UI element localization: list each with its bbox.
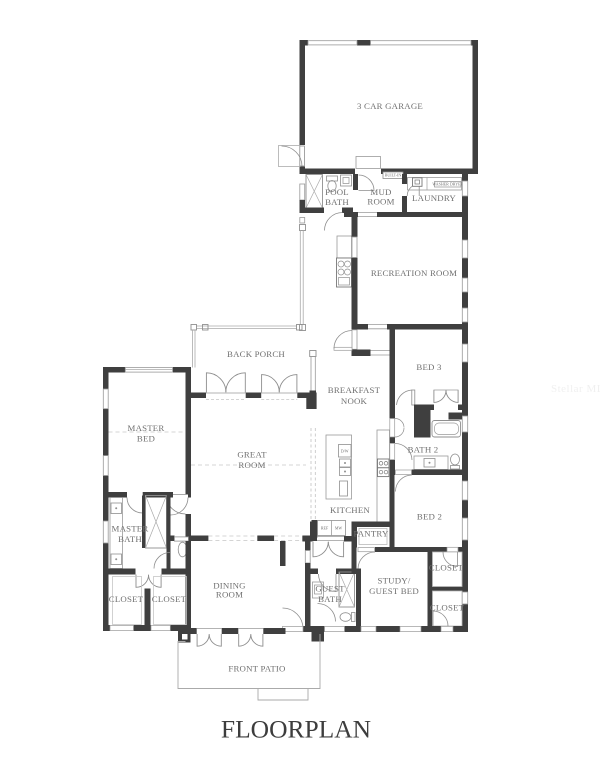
svg-text:STUDY/: STUDY/ bbox=[378, 576, 411, 586]
svg-text:CLOSET: CLOSET bbox=[429, 563, 464, 573]
svg-text:KITCHEN: KITCHEN bbox=[330, 505, 370, 515]
svg-text:PANTRY: PANTRY bbox=[353, 529, 389, 539]
svg-text:ROOM: ROOM bbox=[367, 197, 394, 207]
svg-text:GUEST: GUEST bbox=[315, 584, 345, 594]
svg-text:BATH 2: BATH 2 bbox=[408, 445, 439, 455]
svg-text:WASHER DRYER: WASHER DRYER bbox=[432, 182, 463, 187]
svg-text:REF: REF bbox=[321, 526, 329, 531]
svg-text:FLOORPLAN: FLOORPLAN bbox=[221, 715, 371, 744]
svg-text:GREAT: GREAT bbox=[237, 450, 267, 460]
svg-text:LAUNDRY: LAUNDRY bbox=[412, 193, 456, 203]
svg-text:POOL: POOL bbox=[325, 187, 349, 197]
svg-text:ROOM: ROOM bbox=[238, 460, 265, 470]
svg-text:GUEST BED: GUEST BED bbox=[369, 586, 419, 596]
svg-text:MASTER: MASTER bbox=[128, 423, 165, 433]
svg-text:Stellar MLS: Stellar MLS bbox=[551, 383, 600, 395]
svg-text:RECREATION ROOM: RECREATION ROOM bbox=[371, 268, 457, 278]
svg-text:BATH: BATH bbox=[325, 197, 349, 207]
svg-text:CLOSET: CLOSET bbox=[109, 594, 144, 604]
svg-text:MASTER: MASTER bbox=[112, 524, 149, 534]
svg-text:ROOM: ROOM bbox=[216, 590, 243, 600]
svg-text:BATH: BATH bbox=[118, 534, 142, 544]
svg-text:FRONT PATIO: FRONT PATIO bbox=[228, 664, 285, 674]
svg-text:CLOSET: CLOSET bbox=[430, 603, 465, 613]
svg-text:BED 2: BED 2 bbox=[417, 512, 442, 522]
svg-text:MUD: MUD bbox=[370, 187, 391, 197]
svg-text:BACK PORCH: BACK PORCH bbox=[227, 349, 285, 359]
svg-text:D/W: D/W bbox=[341, 448, 349, 453]
svg-text:3 CAR GARAGE: 3 CAR GARAGE bbox=[357, 101, 423, 111]
svg-text:BREAKFAST: BREAKFAST bbox=[328, 385, 381, 395]
svg-text:MW: MW bbox=[335, 526, 343, 531]
svg-text:BED: BED bbox=[137, 434, 155, 444]
svg-text:NOOK: NOOK bbox=[341, 396, 368, 406]
svg-text:BUILT-IN: BUILT-IN bbox=[385, 173, 402, 178]
svg-text:CLOSET: CLOSET bbox=[152, 594, 187, 604]
svg-text:BED 3: BED 3 bbox=[416, 362, 442, 372]
